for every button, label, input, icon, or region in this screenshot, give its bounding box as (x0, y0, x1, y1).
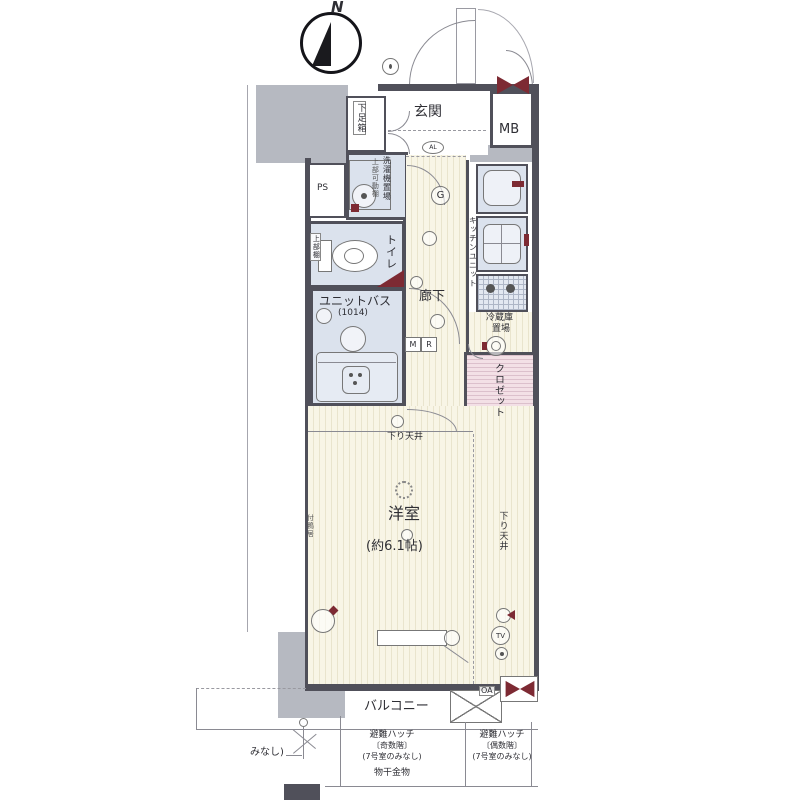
tv-label: TV (496, 632, 505, 640)
minashi-leader-line (286, 755, 302, 756)
lowered-ceiling-label-v: 下り天井 (497, 511, 506, 551)
r-label: R (426, 340, 432, 349)
bathtub-rim-line (318, 362, 396, 363)
minashi-partial-label: みなし) (250, 748, 284, 759)
al-mark-label: AL (429, 144, 436, 151)
laundry-bracket-arm-1 (292, 729, 316, 749)
meter-box-r: R (421, 337, 437, 352)
lowered-ceiling-line-v (473, 434, 474, 684)
bath-drain-icon (342, 366, 370, 394)
kitchen-counter-top (483, 224, 521, 264)
meter-box-label: MB (499, 123, 519, 137)
unit-bath-size-label: (1014) (338, 309, 368, 318)
entrance-step-line (388, 130, 486, 131)
counter-divider-h (484, 243, 520, 244)
balcony-fire-damper-icon (506, 681, 535, 697)
damper-left-triangle (506, 681, 520, 697)
hatch-left-line3: (7号室のみなし) (330, 753, 454, 761)
ceiling-light-icon (395, 481, 413, 499)
tv-outlet-mark: TV (491, 626, 510, 645)
compass-north-label: N (331, 0, 344, 16)
fridge-label-1: 冷蔵庫 (486, 314, 513, 323)
corridor-mark-1 (422, 231, 437, 246)
entrance-door-arc (409, 20, 475, 85)
stove-burner-2 (506, 284, 515, 293)
bath-drain-dot-3 (353, 381, 357, 385)
washer-label-sub: 上部可動棚 (371, 158, 378, 198)
toilet-bowl-inner (344, 248, 364, 264)
floor-plan: N (0, 0, 800, 800)
bath-accessory-icon (316, 308, 332, 324)
corridor-mark-3 (430, 314, 445, 329)
kitchen-sink-basin (483, 170, 521, 206)
washer-drum-center (361, 193, 367, 199)
bath-drain-dot-2 (358, 373, 362, 377)
compass-needle-icon (312, 22, 331, 66)
entrance-label: 玄関 (414, 105, 442, 120)
oa-label: OA (479, 686, 495, 696)
meter-box-m: M (405, 337, 421, 352)
gas-meter-mark: G (431, 186, 450, 205)
hatch-right-line2: 〔偶数階〕 (440, 742, 564, 750)
main-room-label: 洋室 (388, 506, 420, 523)
washer-label-main: 洗濯機置場 (382, 156, 390, 201)
pipe-space-label: PS (317, 184, 328, 193)
shoe-box-label: 下足箱 (353, 101, 366, 135)
kitchen-label: キッチンユニット (468, 216, 476, 288)
closet-label: クロゼット (492, 363, 503, 418)
lowered-ceiling-label-h: 下り天井 (387, 433, 423, 442)
desk-mark (444, 630, 460, 646)
hatch-right-line1: 避難ハッチ (440, 731, 564, 740)
washbasin-icon (340, 326, 366, 352)
damper-left-triangle (497, 76, 513, 94)
balcony-stub-1 (340, 716, 341, 786)
laundry-hardware-label: 物干金物 (374, 769, 410, 778)
kamoi-label: 付鴨居 (306, 514, 313, 538)
room-mark-stack-1-tick (507, 610, 515, 620)
washer-tap-icon (351, 204, 359, 212)
bottom-left-pillar (284, 784, 320, 800)
bottom-boundary-line (325, 786, 538, 787)
balcony-left-end-line (196, 688, 197, 730)
fridge-label-2: 置場 (492, 325, 510, 334)
toilet-shelf-label: 上部棚 (310, 233, 321, 261)
hatch-right-line3: (7号室のみなし) (440, 753, 564, 761)
bath-drain-dot-1 (349, 373, 353, 377)
al-mark: AL (422, 141, 444, 154)
stove-burner-1 (486, 284, 495, 293)
main-room-size-label: (約6.1帖) (366, 540, 423, 554)
balcony-label: バルコニー (364, 700, 429, 714)
mb-fire-damper-icon (497, 76, 529, 94)
fridge-mark-inner (491, 341, 501, 351)
compass-icon (300, 12, 362, 74)
corridor-boundary-line (406, 156, 466, 157)
counter-handle-icon (524, 234, 529, 246)
unit-bath-label: ユニットバス (319, 295, 391, 308)
gas-meter-label: G (437, 190, 445, 201)
corridor-mark-2 (410, 276, 423, 289)
property-line-left (247, 85, 248, 632)
kitchen-stove-unit (476, 274, 528, 312)
balcony-left-top-line (196, 688, 306, 689)
corridor-label: 廊下 (419, 290, 445, 304)
toilet-corner-triangle (377, 270, 404, 287)
kitchen-faucet-icon (512, 181, 524, 187)
counter-divider-v (501, 225, 502, 263)
laundry-bracket-icon (299, 718, 308, 727)
entrance-mark-dot (389, 64, 392, 69)
laundry-bracket-arm-2 (293, 734, 317, 754)
corridor-mark-4 (391, 415, 404, 428)
hatch-left-line1: 避難ハッチ (330, 731, 454, 740)
toilet-label: トイレ (385, 234, 397, 270)
damper-right-triangle (513, 76, 529, 94)
hatch-left-line2: 〔奇数階〕 (330, 742, 454, 750)
m-label: M (410, 340, 417, 349)
room-meter-box (490, 91, 534, 148)
damper-right-triangle (520, 681, 534, 697)
room-mark-stack-3-dot (500, 652, 504, 656)
neighbor-block-top-left (256, 85, 348, 163)
counter-desk-icon (377, 630, 447, 646)
